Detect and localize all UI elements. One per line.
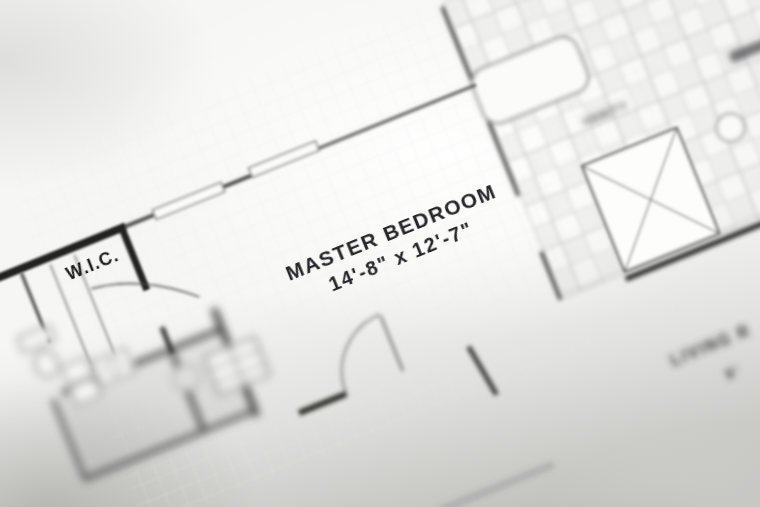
living-room-dimensions-partial: 9': [723, 363, 742, 383]
toilet-bowl: [31, 348, 61, 380]
rotated-plan: W.I.C. MASTER BEDROOM 14'-8" x 12'-7" VA…: [0, 0, 760, 507]
hallway-wall-faint: [439, 464, 554, 507]
living-room-label-partial: LIVING R: [668, 321, 753, 369]
floorplan-photo: W.I.C. MASTER BEDROOM 14'-8" x 12'-7" VA…: [0, 0, 760, 507]
blueprint-photo-svg: W.I.C. MASTER BEDROOM 14'-8" x 12'-7" VA…: [0, 0, 760, 507]
toilet-tank: [17, 325, 55, 353]
